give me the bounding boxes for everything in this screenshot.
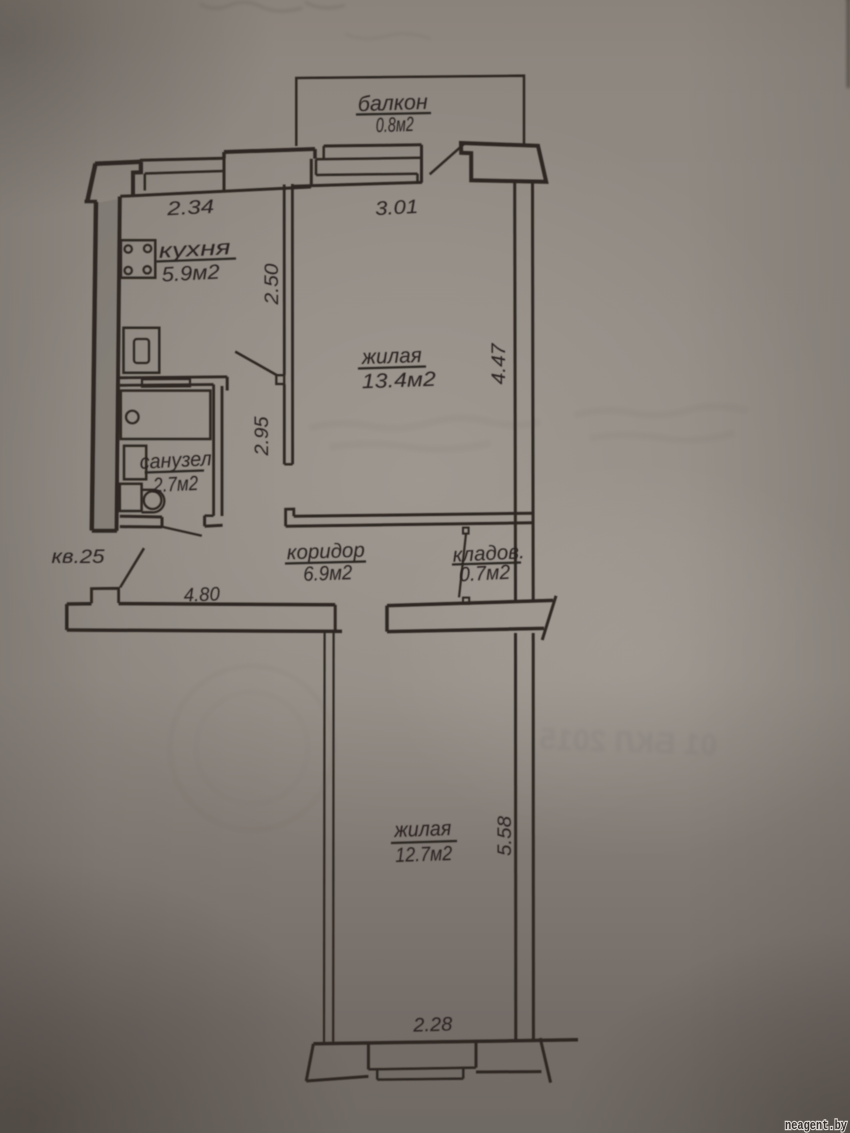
svg-text:0.8м2: 0.8м2	[375, 113, 414, 137]
svg-text:2.7м2: 2.7м2	[152, 472, 199, 497]
svg-text:2.50: 2.50	[261, 263, 283, 305]
svg-text:2.28: 2.28	[412, 1013, 453, 1036]
svg-text:2.95: 2.95	[251, 416, 273, 456]
svg-text:12.7м2: 12.7м2	[395, 842, 453, 867]
svg-text:4.80: 4.80	[183, 583, 220, 606]
svg-text:жилая: жилая	[393, 817, 452, 842]
svg-text:4.47: 4.47	[488, 342, 510, 384]
svg-text:5.9м2: 5.9м2	[161, 260, 221, 286]
svg-text:5.58: 5.58	[494, 816, 516, 856]
svg-text:3.01: 3.01	[375, 196, 419, 220]
svg-text:neagent.by: neagent.by	[785, 1118, 847, 1133]
svg-text:коридор: коридор	[286, 539, 365, 565]
svg-text:6.9м2: 6.9м2	[303, 561, 353, 586]
svg-text:13.4м2: 13.4м2	[361, 368, 436, 394]
svg-text:2.34: 2.34	[165, 196, 215, 221]
svg-text:01 БКЛ 2015: 01 БКЛ 2015	[539, 723, 718, 762]
svg-text:жилая: жилая	[360, 344, 422, 369]
svg-text:кв.25: кв.25	[52, 546, 105, 568]
